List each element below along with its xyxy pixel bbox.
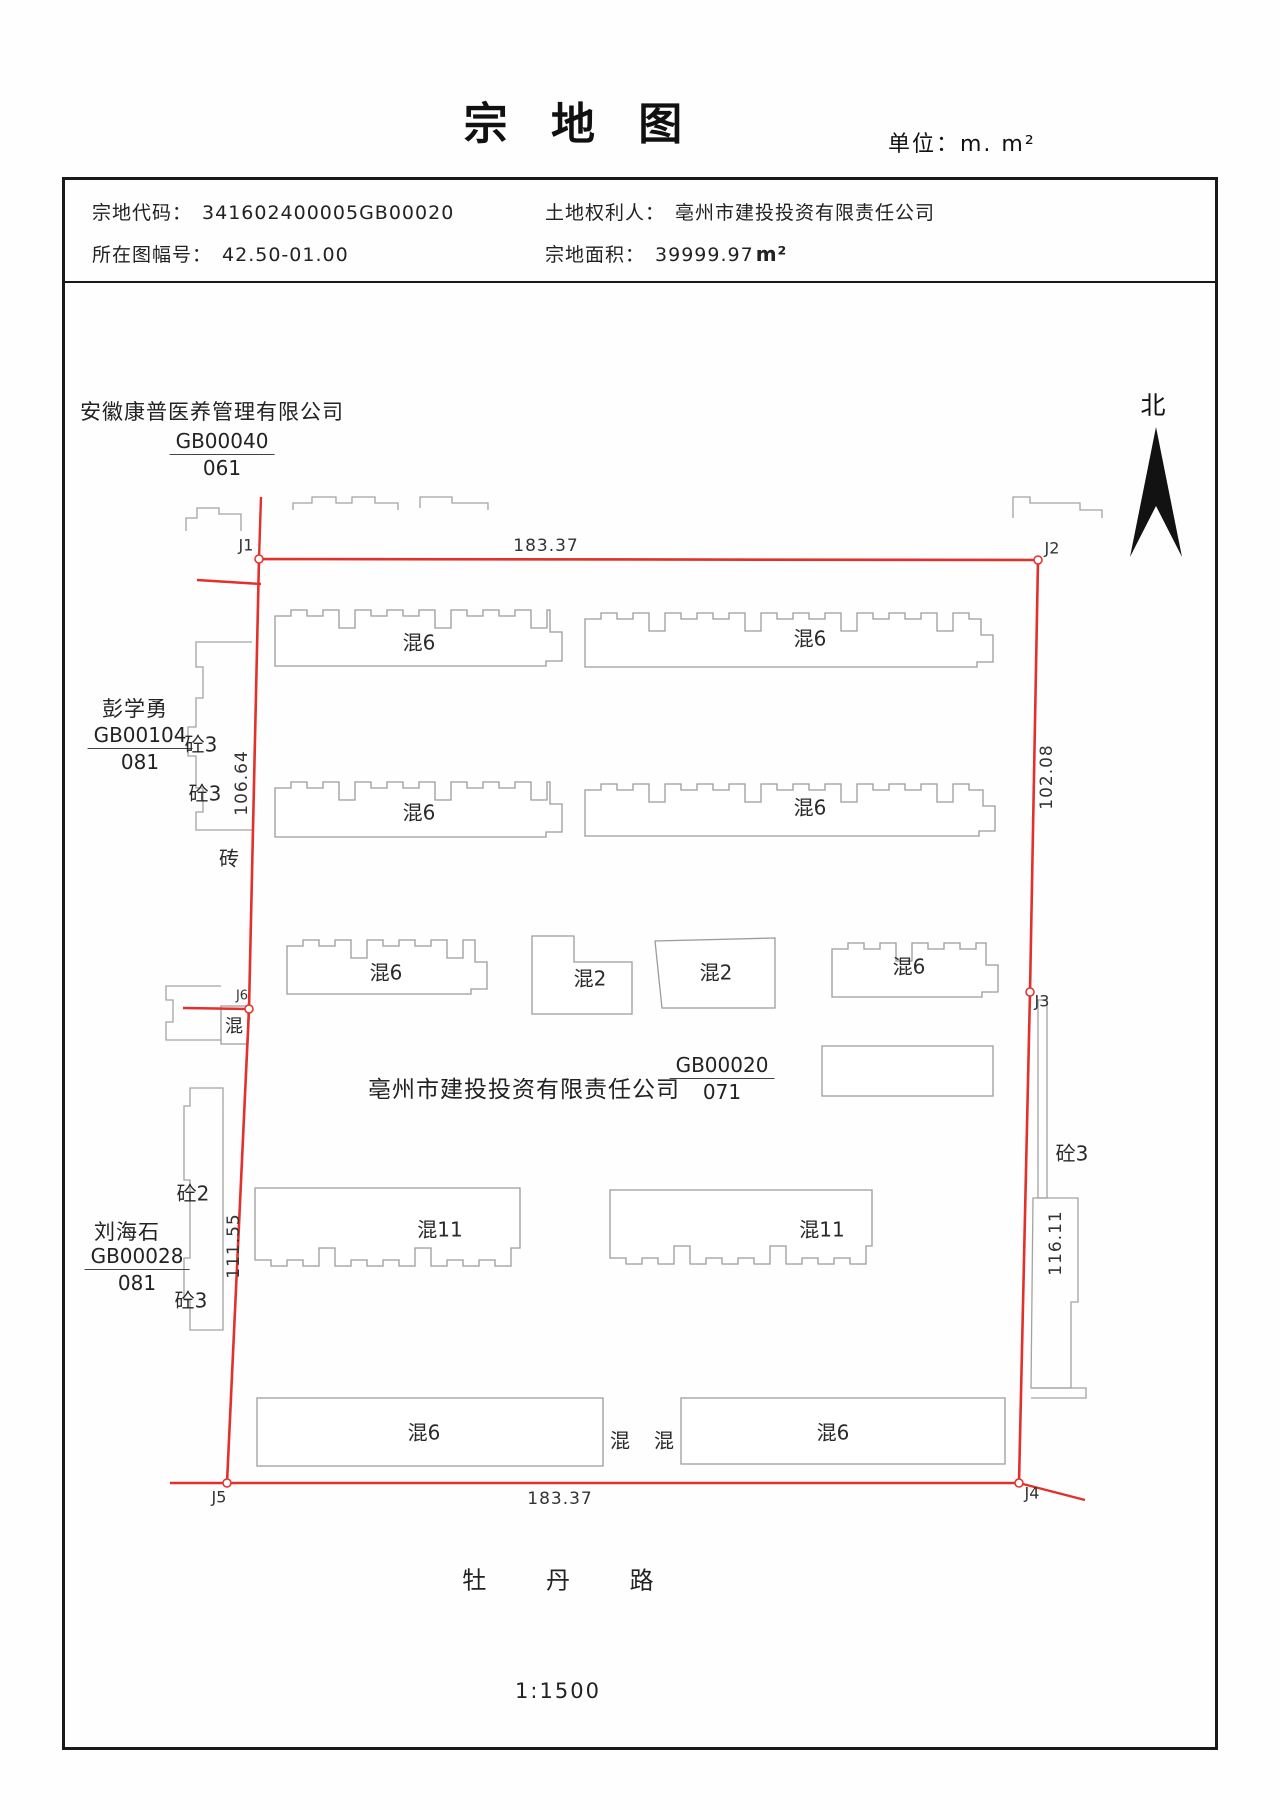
- parcel-code-num: GB00020: [670, 1054, 775, 1079]
- structure-note: 砼3: [185, 729, 218, 758]
- building-label: 混6: [794, 792, 827, 821]
- road-name: 牡 丹 路: [436, 1561, 679, 1596]
- structure-note: 砖: [219, 843, 239, 872]
- dimension-left-upper: 106.64: [232, 750, 252, 815]
- building-label: 混2: [700, 957, 733, 986]
- parcel-code-den: 071: [670, 1079, 775, 1103]
- area-unit: m²: [756, 242, 788, 266]
- dimension-left-lower: 111.55: [224, 1213, 244, 1278]
- boundary-point-label-j4: J4: [1025, 1484, 1040, 1503]
- header-divider: [64, 281, 1216, 283]
- structure-note: 砼3: [189, 778, 222, 807]
- structure-note: 砼3: [1056, 1138, 1089, 1167]
- building-label: 混6: [794, 623, 827, 652]
- building-label: 混6: [893, 951, 926, 980]
- dimension-right-lower: 116.11: [1046, 1210, 1066, 1275]
- owner-value: 亳州市建投投资有限责任公司: [675, 202, 935, 224]
- neighbor-north-code-num: GB00040: [170, 430, 275, 455]
- structure-note: 砼3: [175, 1285, 208, 1314]
- parcel-code-value: 341602400005GB00020: [202, 202, 454, 224]
- building-label: 混: [654, 1425, 674, 1454]
- dimension-right-upper: 102.08: [1037, 744, 1057, 809]
- building-label: 混6: [408, 1417, 441, 1446]
- north-label: 北: [1140, 386, 1165, 422]
- neighbor-west-upper-code-den: 081: [88, 749, 193, 773]
- area-label: 宗地面积：: [545, 244, 645, 266]
- building-label: 混2: [574, 963, 607, 992]
- building-label: 混6: [403, 627, 436, 656]
- area-row: 宗地面积：39999.97m²: [545, 240, 787, 267]
- parcel-code-annotation: GB00020 071: [670, 1054, 775, 1103]
- dimension-bottom: 183.37: [527, 1489, 592, 1509]
- building-label: 混11: [417, 1214, 462, 1243]
- neighbor-north-code: GB00040 061: [170, 430, 275, 479]
- neighbor-north-code-den: 061: [170, 455, 275, 479]
- parcel-code-row: 宗地代码：341602400005GB00020: [92, 198, 454, 225]
- unit-note: 单位：m. m²: [888, 126, 1036, 158]
- building-label: 混6: [817, 1417, 850, 1446]
- parcel-owner-annotation: 亳州市建投投资有限责任公司: [368, 1070, 680, 1104]
- neighbor-west-upper-code-num: GB00104: [88, 724, 193, 749]
- building-label: 混11: [799, 1214, 844, 1243]
- building-label: 混: [610, 1425, 630, 1454]
- structure-note: 砼2: [177, 1178, 210, 1207]
- boundary-point-label-j6: J6: [236, 989, 248, 1004]
- map-scale: 1:1500: [515, 1679, 601, 1703]
- parcel-map-page: 宗 地 图 单位：m. m² 宗地代码：341602400005GB00020 …: [0, 0, 1280, 1810]
- dimension-top: 183.37: [513, 536, 578, 556]
- boundary-point-label-j3: J3: [1035, 992, 1050, 1011]
- boundary-point-label-j2: J2: [1045, 539, 1060, 558]
- owner-label: 土地权利人：: [545, 202, 665, 224]
- sheet-value: 42.50-01.00: [222, 244, 349, 266]
- neighbor-west-upper-code: GB00104 081: [88, 724, 193, 773]
- neighbor-west-lower-name: 刘海石: [94, 1216, 160, 1246]
- owner-row: 土地权利人：亳州市建投投资有限责任公司: [545, 198, 935, 225]
- building-label: 混6: [403, 797, 436, 826]
- neighbor-west-upper-name: 彭学勇: [102, 693, 168, 723]
- area-value: 39999.97: [655, 244, 754, 266]
- boundary-point-label-j1: J1: [239, 536, 254, 555]
- neighbor-north-name: 安徽康普医养管理有限公司: [80, 396, 344, 426]
- neighbor-west-lower-code-num: GB00028: [85, 1245, 190, 1270]
- sheet-row: 所在图幅号：42.50-01.00: [92, 240, 349, 267]
- sheet-label: 所在图幅号：: [92, 244, 212, 266]
- building-label: 混: [225, 1012, 243, 1038]
- parcel-code-label: 宗地代码：: [92, 202, 192, 224]
- boundary-point-label-j5: J5: [212, 1488, 227, 1507]
- building-label: 混6: [370, 957, 403, 986]
